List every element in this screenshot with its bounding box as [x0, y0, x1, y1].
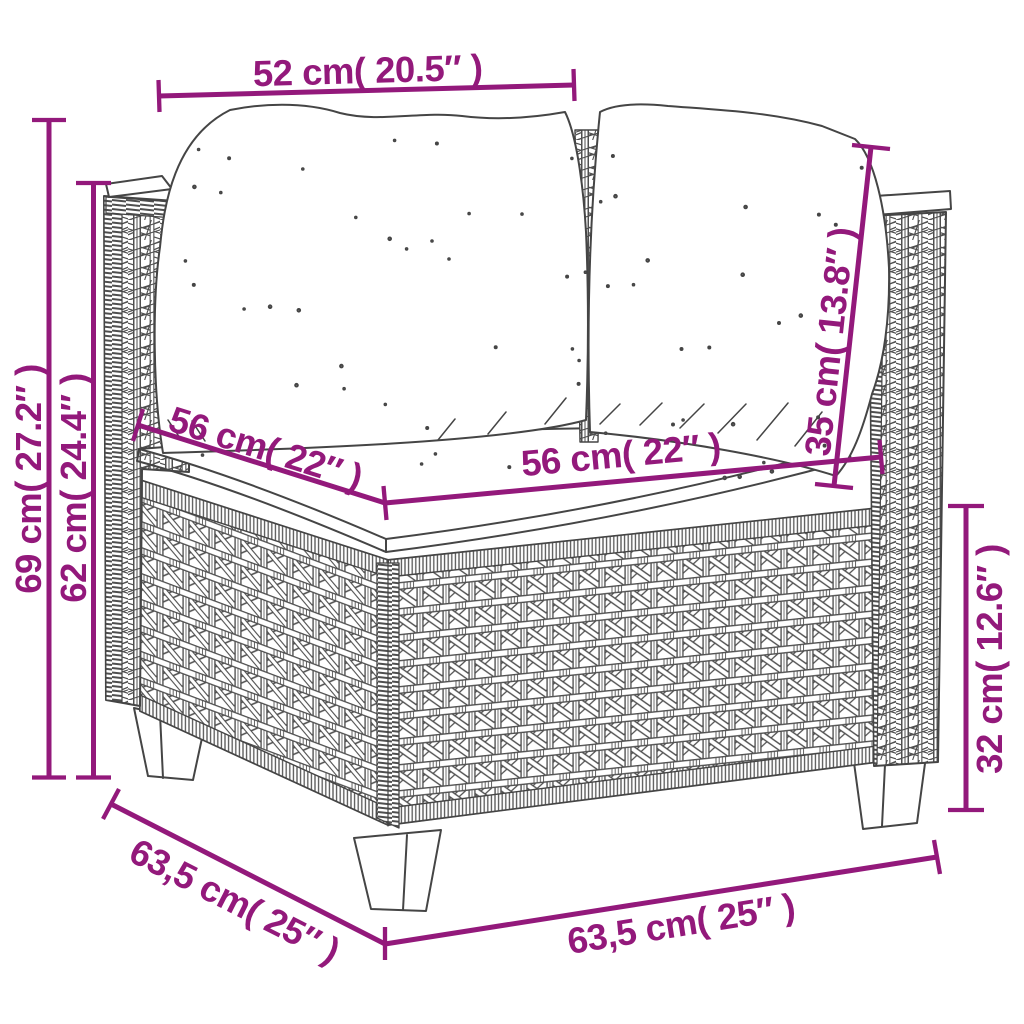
svg-text:69 cm( 27.2″ ): 69 cm( 27.2″ ) [8, 364, 49, 594]
svg-text:52 cm( 20.5″ ): 52 cm( 20.5″ ) [252, 47, 483, 94]
svg-text:62 cm( 24.4″ ): 62 cm( 24.4″ ) [53, 373, 94, 603]
svg-text:63,5 cm( 25″ ): 63,5 cm( 25″ ) [123, 830, 346, 971]
svg-text:32 cm( 12.6″ ): 32 cm( 12.6″ ) [969, 544, 1010, 774]
